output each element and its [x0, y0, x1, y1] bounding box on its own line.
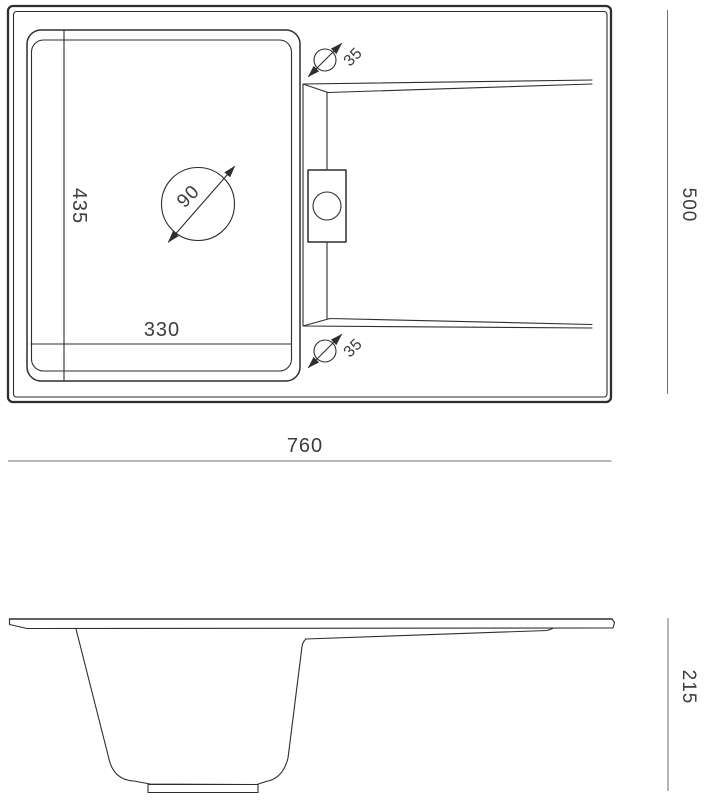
- rim-right-cap: [612, 619, 615, 628]
- overall-width-label: 760: [287, 435, 323, 457]
- rim-underside-edge: [27, 628, 613, 629]
- rim-left-cap: [10, 619, 28, 629]
- overall-depth-label: 500: [678, 188, 699, 223]
- hole-top-diameter-label: 35: [341, 45, 366, 70]
- tap-hole-circle: [313, 192, 341, 220]
- bowl-profile: [76, 629, 306, 785]
- side-view: 215: [10, 618, 700, 793]
- drainboard-slope-line: [306, 629, 553, 639]
- tap-hole-block: [308, 170, 346, 242]
- height-label: 215: [678, 670, 699, 705]
- sink-outer-edge: [8, 6, 611, 402]
- drain-diameter-line: [169, 167, 235, 243]
- hole-annotation-bottom: 35: [309, 335, 367, 368]
- drain-fitting: [148, 785, 258, 793]
- sink-drawing-canvas: 90 435 330 35 35 500 760: [0, 0, 704, 800]
- hole-bottom-diameter-label: 35: [341, 336, 366, 361]
- bowl-width-label: 330: [144, 319, 180, 341]
- top-view: 90 435 330 35 35 500 760: [8, 6, 699, 461]
- hole-annotation-top: 35: [309, 44, 367, 77]
- technical-drawing-page: 90 435 330 35 35 500 760: [0, 0, 704, 800]
- bowl-depth-label: 435: [68, 188, 90, 224]
- drain-diameter-label: 90: [173, 181, 204, 212]
- sink-inner-edge: [14, 12, 608, 398]
